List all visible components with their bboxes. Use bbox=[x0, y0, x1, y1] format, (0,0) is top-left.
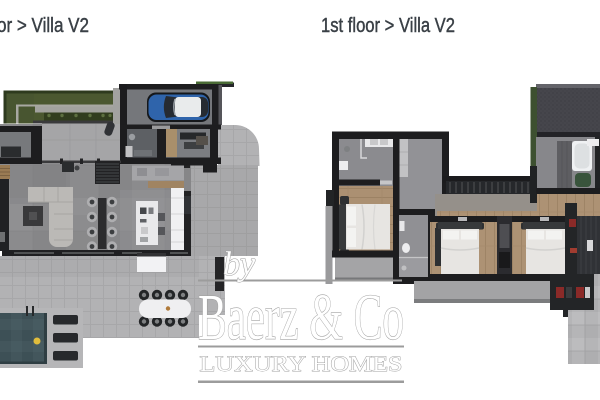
svg-text:by: by bbox=[223, 246, 256, 283]
svg-text:1st floor > Villa V2: 1st floor > Villa V2 bbox=[321, 15, 455, 37]
svg-text:Baerz & Co: Baerz & Co bbox=[198, 281, 404, 354]
svg-text:LUXURY HOMES: LUXURY HOMES bbox=[200, 351, 403, 376]
svg-text:or > Villa V2: or > Villa V2 bbox=[0, 15, 89, 37]
